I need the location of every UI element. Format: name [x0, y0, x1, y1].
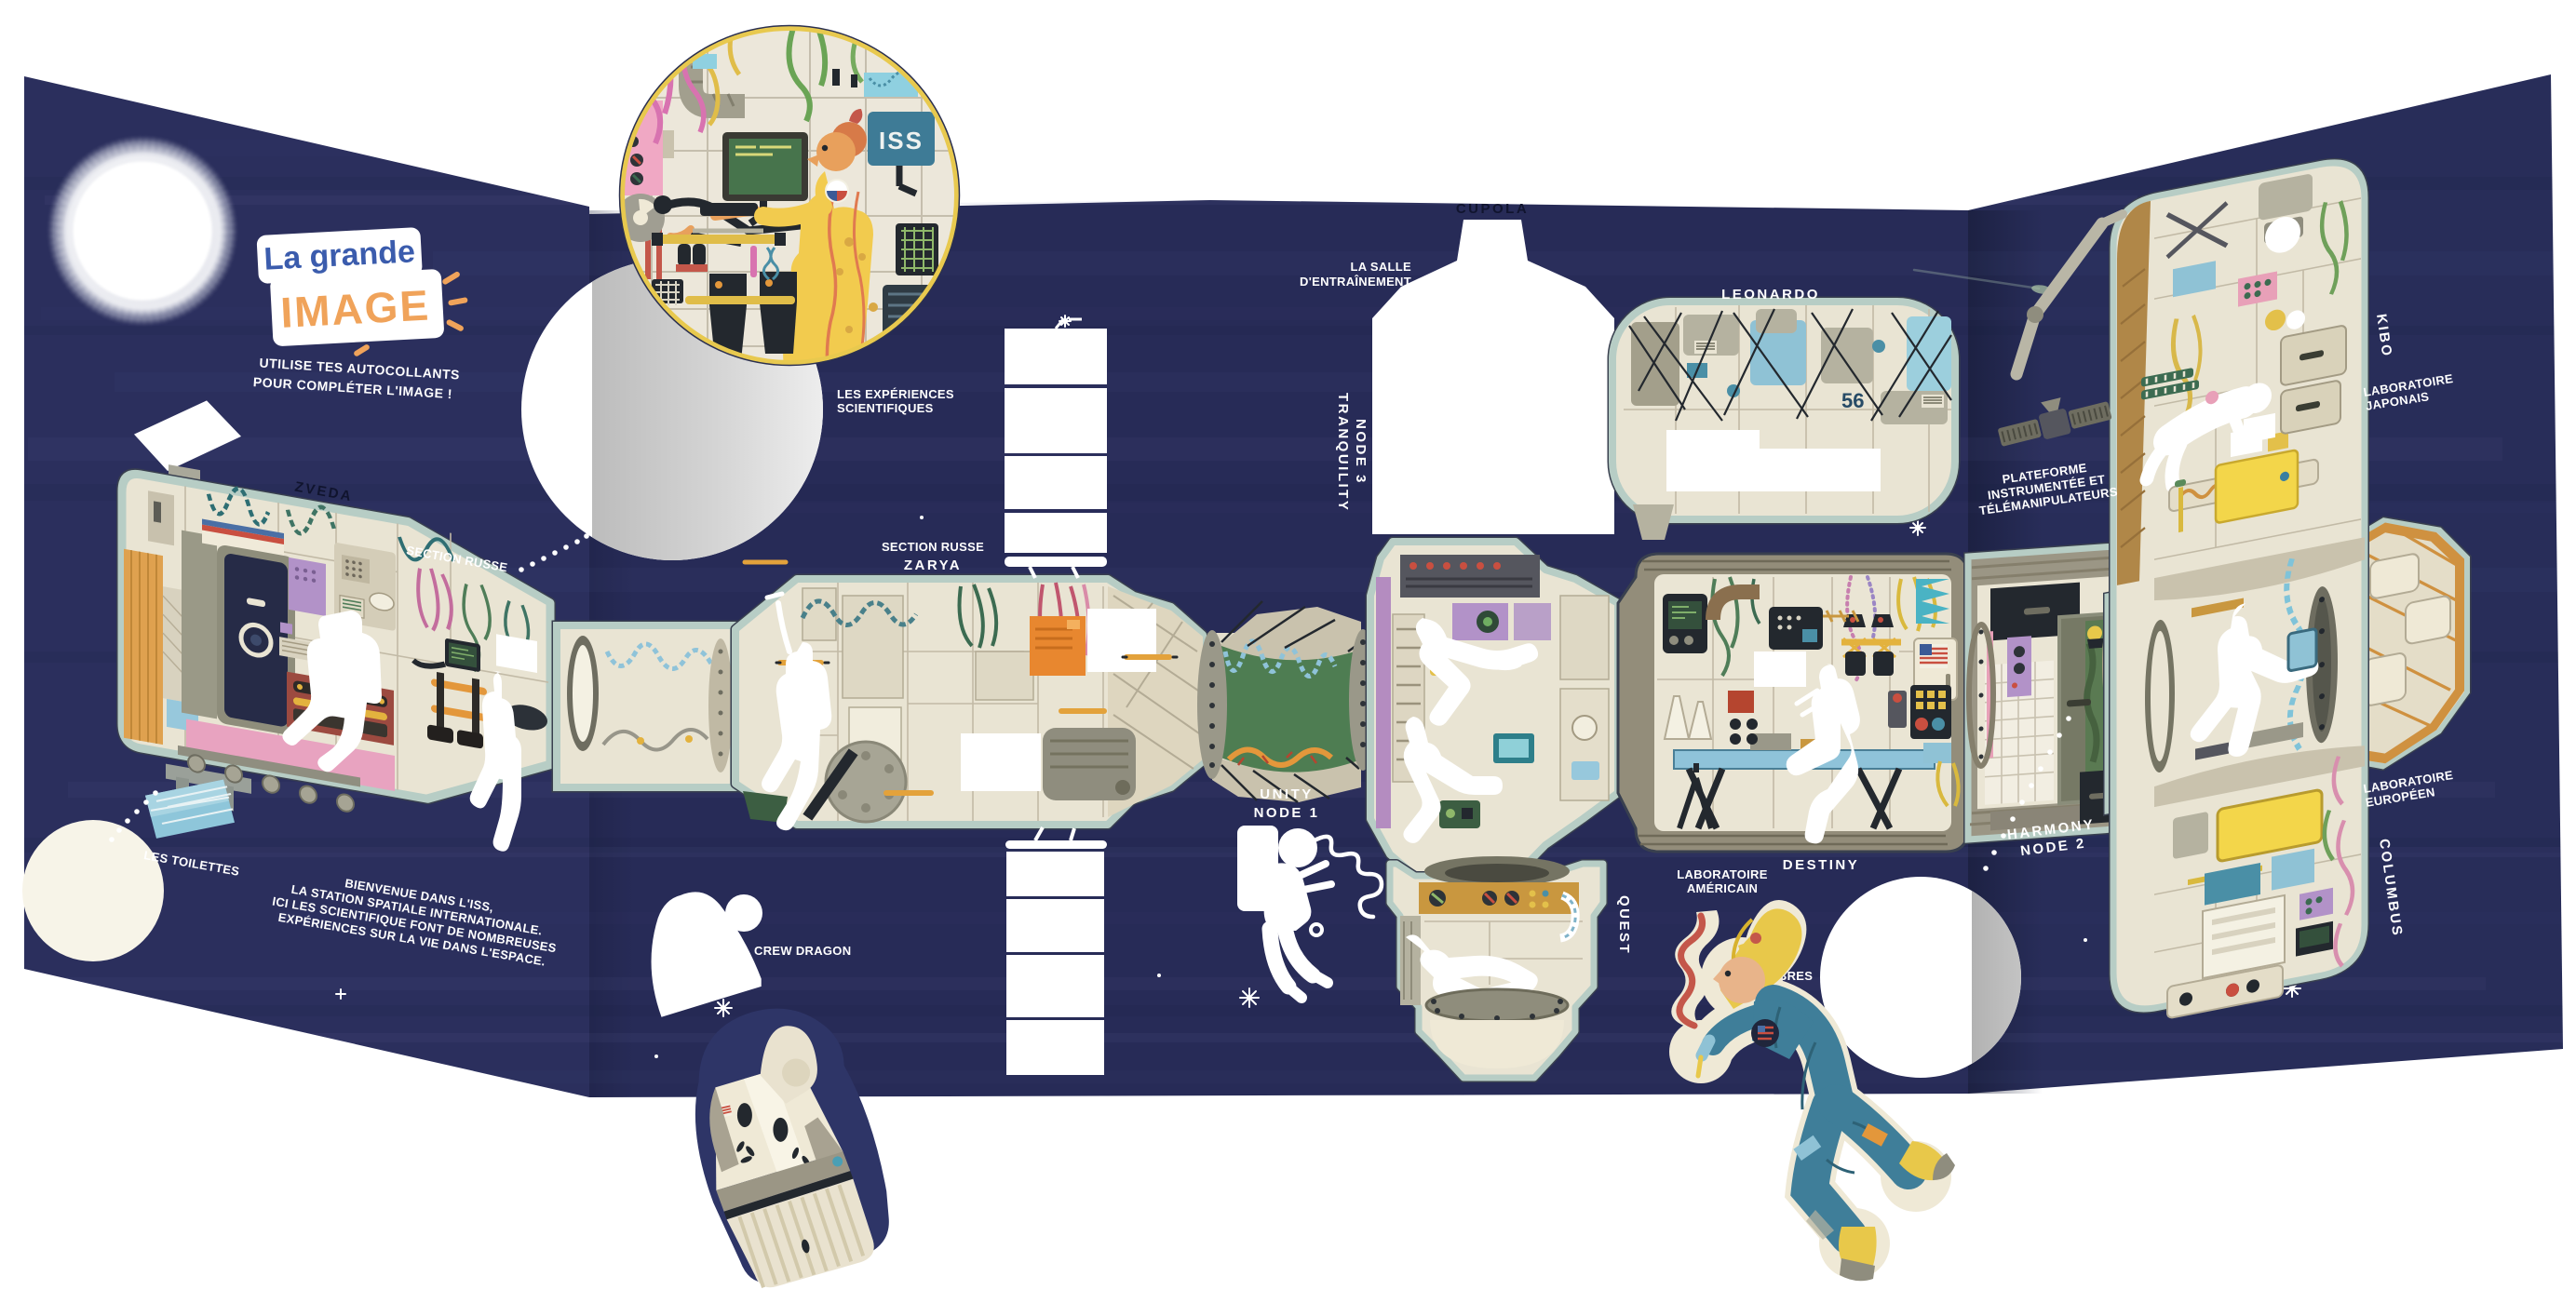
svg-text:LABORATOIRE: LABORATOIRE	[1677, 867, 1767, 881]
svg-text:CUPOLA: CUPOLA	[1456, 201, 1529, 217]
svg-text:SCIENTIFIQUES: SCIENTIFIQUES	[837, 401, 934, 415]
svg-text:D'ENTRAÎNEMENT: D'ENTRAÎNEMENT	[1300, 275, 1411, 289]
svg-text:LA SALLE: LA SALLE	[1351, 260, 1411, 274]
svg-text:IMAGE: IMAGE	[279, 281, 431, 337]
svg-text:ZARYA: ZARYA	[904, 557, 962, 573]
svg-text:LES EXPÉRIENCES: LES EXPÉRIENCES	[837, 387, 954, 401]
svg-text:DESTINY: DESTINY	[1783, 857, 1860, 873]
svg-text:QUEST: QUEST	[1616, 895, 1632, 955]
svg-text:ISS: ISS	[879, 127, 924, 154]
svg-text:NODE 3: NODE 3	[1353, 419, 1369, 485]
svg-text:CREW DRAGON: CREW DRAGON	[754, 944, 851, 958]
svg-text:NODE 1: NODE 1	[1254, 805, 1320, 821]
svg-text:TRANQUILITY: TRANQUILITY	[1335, 393, 1351, 512]
svg-text:SECTION RUSSE: SECTION RUSSE	[882, 540, 984, 554]
svg-text:UNITY: UNITY	[1260, 786, 1314, 802]
svg-text:AMÉRICAIN: AMÉRICAIN	[1687, 881, 1758, 895]
svg-text:56: 56	[1841, 389, 1864, 412]
svg-text:LEONARDO: LEONARDO	[1721, 287, 1820, 302]
